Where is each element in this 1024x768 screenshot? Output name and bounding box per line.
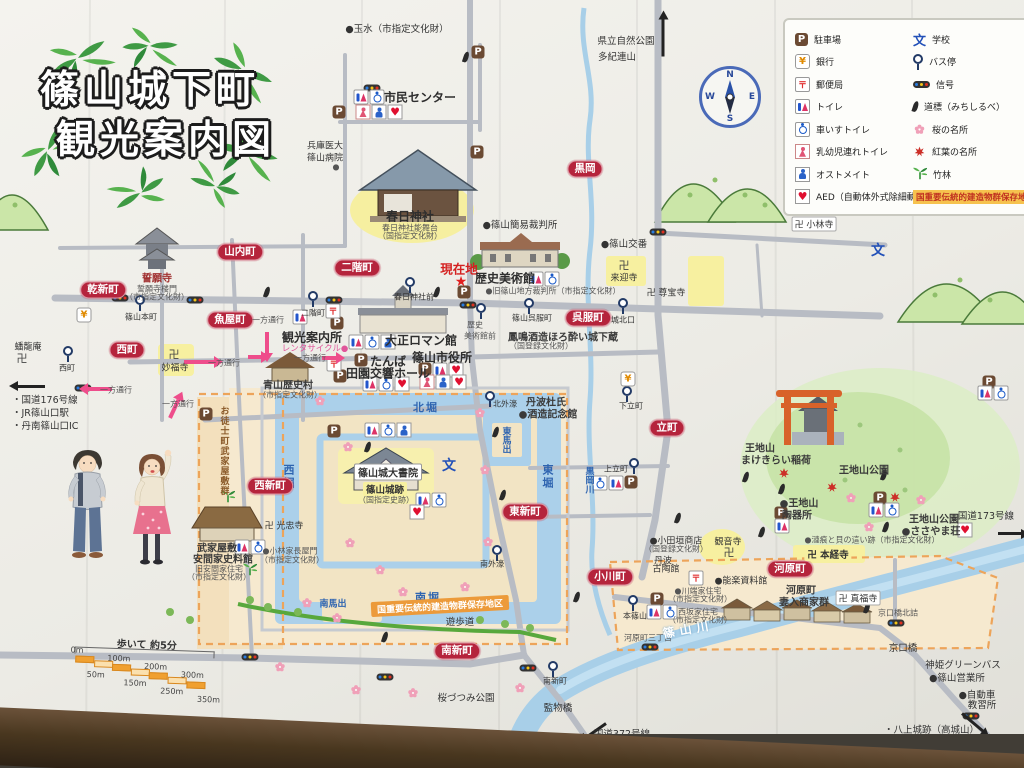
legend-label-wheelchair: 車いすトイレ: [816, 123, 870, 136]
bank-icon: ¥: [621, 372, 636, 387]
map-label: 王地山公園: [839, 462, 889, 477]
map-label: ・JR篠山口駅: [12, 405, 69, 419]
map-label: 東新町: [502, 504, 548, 521]
direction-arrow: [662, 19, 665, 57]
map-label: 陶器所: [782, 507, 812, 522]
signal-icon: [888, 620, 905, 627]
bus-stop: [476, 303, 486, 319]
scale-tick-label: 50m: [87, 670, 105, 680]
map-title-line1: 篠山城下町: [40, 66, 276, 116]
map-label: （市指定文化財）: [668, 594, 732, 605]
signal-icon: [913, 81, 930, 88]
sakura-icon: [274, 661, 287, 674]
wheelchair-icon: [381, 423, 396, 438]
map-label: 山内町: [217, 244, 263, 261]
map-label: ●能楽資料館: [715, 574, 768, 587]
map-label: 美術館前: [464, 331, 496, 342]
signpost-icon: [501, 490, 506, 501]
sakura-icon: [374, 564, 387, 577]
map-label: 河原町: [767, 561, 813, 578]
sakura-icon: [845, 492, 858, 505]
map-label: （市指定文化財）: [187, 572, 251, 583]
legend-row-parking: P駐車場: [795, 28, 913, 51]
sakura-icon: [331, 612, 344, 625]
school-icon: 文: [913, 30, 926, 49]
legend-row-post: 〒郵便局: [795, 73, 913, 96]
map-label: 教習所: [968, 697, 997, 711]
signpost-icon: [265, 287, 270, 298]
sakura-icon: [482, 536, 495, 549]
sakura-icon: [913, 123, 926, 136]
map-label: 卍 小林寺: [792, 217, 837, 232]
facility-icons: [869, 503, 900, 518]
map-label: 監物橋: [544, 700, 573, 714]
bus-stop: [628, 595, 638, 611]
signpost-icon: [435, 287, 440, 298]
signpost-icon: [744, 472, 749, 483]
map-label: 東堀: [539, 464, 555, 490]
map-label: 乾新町: [80, 282, 126, 299]
facility-icons: ♥: [356, 105, 403, 120]
map-label: 歴史: [467, 320, 483, 331]
denen-hall: 田園交響ホール: [346, 365, 430, 382]
legend-row-baby: 乳幼児連れトイレ: [795, 141, 913, 164]
toilet-icon: [647, 605, 662, 620]
map-label: 古陶館: [652, 562, 679, 575]
toilet-icon: [869, 503, 884, 518]
busstop-icon: [308, 291, 318, 307]
parking-marker: P: [328, 425, 341, 438]
traffic-signal: [888, 620, 905, 627]
signpost-icon: [913, 101, 918, 112]
map-title: 篠山城下町 観光案内図: [40, 66, 276, 166]
map-label: 一方通行: [294, 353, 326, 364]
parking-marker: P: [200, 408, 213, 421]
traffic-signal: [642, 644, 659, 651]
legend-row-wheelchair: 車いすトイレ: [795, 118, 913, 141]
legend-label-baby: 乳幼児連れトイレ: [816, 145, 888, 158]
parking-icon: P: [200, 408, 213, 421]
map-label: （国指定史跡）: [358, 495, 414, 506]
scale-tick-label: 0m: [70, 645, 83, 654]
map-board: 篠山城下町 観光案内図 N E S W P駐車場¥銀行〒郵便局トイレ車いすトイレ…: [0, 0, 1024, 768]
map-label: ●漣痕と貝の這い跡（市指定文化財）: [805, 535, 940, 546]
compass-e: E: [749, 92, 755, 102]
signpost-icon: [383, 632, 388, 643]
signal-icon: [520, 665, 537, 672]
legend-row-toilet: トイレ: [795, 96, 913, 119]
signal-icon: [642, 644, 659, 651]
legend-label-toilet: トイレ: [816, 100, 843, 113]
aed-icon: ♥: [410, 505, 425, 520]
map-label: 遊歩道: [446, 614, 475, 628]
toilet-icon: [609, 476, 624, 491]
map-label: 県立自然公園: [597, 33, 654, 47]
facility-icons: [354, 90, 385, 105]
makekirai-inari: まけきらい稲荷: [741, 452, 811, 467]
signal-icon: [187, 297, 204, 304]
scale-step: [112, 664, 131, 672]
ostomate-icon: [436, 375, 451, 390]
scale-step: [149, 673, 168, 681]
bus-stop: [618, 298, 628, 314]
map-label: ●酒造記念館: [519, 406, 578, 421]
map-label: 来迎寺: [610, 271, 637, 284]
map-label: 南馬出: [319, 597, 346, 610]
map-label: （市指定文化財）: [258, 390, 322, 401]
busstop-icon: [628, 595, 638, 611]
map-label: 西新町: [247, 478, 293, 495]
wheelchair-icon: [432, 493, 447, 508]
map-label: 黒岡川: [583, 467, 596, 494]
map-label: （市指定文化財）: [125, 292, 189, 303]
map-label: 立町: [650, 420, 685, 437]
bank-icon: ¥: [795, 54, 810, 69]
sakura-icon: [514, 682, 527, 695]
maple-icon: [913, 145, 926, 158]
toilet-icon: [978, 386, 993, 401]
ostomate-icon: [372, 105, 387, 120]
scale-tick-label: 350m: [197, 695, 220, 705]
map-label: （国登録文化財）: [509, 341, 573, 352]
signpost-icon: [494, 427, 499, 438]
wheelchair-icon: [365, 335, 380, 350]
scale-tick-label: 250m: [160, 687, 183, 697]
map-label: お徒士町武家屋敷群: [218, 406, 231, 496]
map-label: 北堀: [413, 399, 439, 415]
legend-row-school: 文学校: [913, 28, 1024, 51]
facility-icons: [365, 423, 412, 438]
busstop-icon: [629, 458, 639, 474]
legend-row-maple: 紅葉の名所: [913, 141, 1024, 164]
direction-arrow: [998, 532, 1022, 535]
signpost-icon: [575, 592, 580, 603]
legend-row-sakura: 桜の名所: [913, 118, 1024, 141]
parking-icon: P: [795, 33, 808, 46]
facility-icons: 〒: [326, 304, 341, 319]
legend-label-parking: 駐車場: [814, 33, 841, 46]
map-label: （市指定文化財）: [260, 555, 324, 566]
legend-row-aed: ♥AED（自動体外式除細動器）: [795, 186, 913, 209]
ostomate-icon: [397, 423, 412, 438]
sakura-icon: [459, 581, 472, 594]
sakura-icon: [342, 441, 355, 454]
bus-stop-label: 春日神社前: [394, 292, 434, 303]
signal-icon: [650, 229, 667, 236]
map-label: 卍: [724, 544, 735, 560]
signpost-icon: [884, 522, 889, 533]
map-label: 文: [871, 240, 885, 260]
wheelchair-icon: [795, 122, 810, 137]
busstop-icon: [618, 298, 628, 314]
scale-tick-label: 300m: [181, 670, 204, 680]
baby-icon: [795, 144, 810, 159]
maple-icon: [778, 467, 791, 480]
legend-row-district: 国重要伝統的建造物群保存地区: [913, 186, 1024, 209]
facility-icons: 〒: [689, 571, 704, 586]
signal-icon: [326, 297, 343, 304]
map-title-line2: 観光案内図: [56, 116, 276, 166]
facility-icons: P: [593, 476, 638, 491]
map-label: ・国道176号線: [12, 392, 78, 406]
sakura-icon: [407, 687, 420, 700]
compass-n: N: [726, 70, 734, 80]
parking-marker: P: [333, 106, 346, 119]
map-label: 一方通行: [252, 315, 284, 326]
signpost-icon: [676, 513, 681, 524]
tamamizu: ●玉水（市指定文化財）: [345, 21, 448, 35]
traffic-signal: [377, 674, 394, 681]
legend-label-district: 国重要伝統的建造物群保存地区: [913, 190, 1024, 204]
wheelchair-icon: [994, 386, 1009, 401]
legend-label-ostomate: オストメイト: [816, 168, 870, 181]
aed-icon: ♥: [452, 375, 467, 390]
map-label: ●篠山営業所: [929, 670, 985, 684]
sakura-icon: [397, 586, 410, 599]
wheelchair-icon: [545, 272, 560, 287]
map-label: ●篠山交番: [601, 236, 647, 250]
legend-row-ostomate: オストメイト: [795, 163, 913, 186]
city-hall: 篠山市役所: [412, 349, 472, 366]
toilet-icon: [365, 423, 380, 438]
map-label: 一方通行: [162, 399, 194, 410]
history-art-museum: 歴史美術館: [475, 270, 535, 287]
taisho-roman-kan: 大正ロマン館: [385, 332, 457, 349]
traffic-signal: [520, 665, 537, 672]
busstop-icon: [913, 54, 923, 70]
map-label: ・丹南篠山口IC: [12, 418, 78, 432]
bus-stop-label: 篠山本町: [125, 312, 157, 323]
map-label: 文: [442, 455, 456, 475]
legend-label-maple: 紅葉の名所: [932, 145, 977, 158]
wheelchair-icon: [370, 90, 385, 105]
traffic-signal: [242, 654, 259, 661]
bus-stop-label: 篠山呉服町: [512, 313, 552, 324]
bus-stop-label: 北外濠: [493, 399, 517, 410]
scale-step: [75, 656, 94, 664]
compass-w: W: [705, 92, 715, 102]
summary-court: ●篠山簡易裁判所: [483, 217, 558, 231]
map-label: ●: [333, 163, 340, 172]
map-label: 卍 光忠寺: [265, 519, 304, 532]
map-label: 卍: [17, 350, 28, 366]
one-way-arrow: [248, 355, 261, 359]
signal-icon: [377, 674, 394, 681]
signpost-icon: [366, 442, 371, 453]
map-label: 小川町: [587, 569, 633, 586]
sakura-park: 桜づつみ公園: [437, 690, 494, 704]
bus-stop-label: 本篠山: [623, 611, 647, 622]
traffic-signal: [650, 229, 667, 236]
map-label: 一方通行: [100, 385, 132, 396]
bus-stop-label: 南外濠: [480, 559, 504, 570]
sakura-icon: [863, 521, 876, 534]
map-label: 南新町: [434, 643, 480, 660]
map-label: 東馬出: [500, 427, 513, 454]
sakura-icon: [344, 537, 357, 550]
bus-stop-label: 下立町: [619, 401, 643, 412]
post-icon: 〒: [326, 304, 341, 319]
facility-icons: ¥: [621, 372, 636, 387]
sakura-icon: [479, 464, 492, 477]
scale-tick-label: 100m: [107, 654, 130, 664]
post-icon: 〒: [689, 571, 704, 586]
map-label: 二階町: [334, 260, 380, 277]
parking-marker: P: [471, 146, 484, 159]
legend-row-signpost: 道標（みちしるべ）: [913, 96, 1024, 119]
taki-renzan: 多紀連山: [598, 49, 636, 63]
maple-icon: [889, 491, 902, 504]
facility-icons: [978, 386, 1009, 401]
bus-stop-label: 上立町: [604, 464, 628, 475]
map-label: 神姫グリーンバス: [925, 657, 1001, 671]
you-are-here-star: ★: [455, 274, 468, 290]
signpost-icon: [780, 484, 785, 495]
map-label: 黒岡: [568, 161, 603, 178]
traffic-signal: [326, 297, 343, 304]
parking-marker: P: [472, 46, 485, 59]
bank-icon: ¥: [77, 308, 92, 323]
signal-icon: [460, 302, 477, 309]
toilet-icon: [354, 90, 369, 105]
map-label: 誓願寺: [142, 270, 172, 285]
signboard-photo: 篠山城下町 観光案内図 N E S W P駐車場¥銀行〒郵便局トイレ車いすトイレ…: [0, 0, 1024, 768]
legend-label-signpost: 道標（みちしるべ）: [924, 100, 1005, 113]
legend-row-busstop: バス停: [913, 51, 1024, 74]
toilet-icon: [795, 99, 810, 114]
legend-right-column: 文学校バス停信号道標（みちしるべ）桜の名所紅葉の名所竹林国重要伝統的建造物群保存…: [913, 28, 1024, 208]
map-legend: P駐車場¥銀行〒郵便局トイレ車いすトイレ乳幼児連れトイレオストメイト♥AED（自…: [783, 18, 1024, 216]
parking-icon: P: [333, 106, 346, 119]
compass-s: S: [727, 114, 733, 124]
busstop-icon: [476, 303, 486, 319]
map-label: 京口橋: [889, 640, 918, 654]
facility-icons: ♥: [410, 505, 425, 520]
map-label: 魚屋町: [207, 312, 253, 329]
map-label: 卍 真福寺: [836, 591, 881, 606]
map-label: （国指定文化財）: [378, 231, 442, 242]
ostomate-icon: [795, 167, 810, 182]
bus-stop: [629, 458, 639, 474]
parking-icon: P: [625, 476, 638, 489]
legend-row-signal: 信号: [913, 73, 1024, 96]
bus-stop-label: 城北口: [611, 315, 635, 326]
toilet-icon: [349, 335, 364, 350]
scale-tick-label: 200m: [144, 662, 167, 672]
parking-icon: P: [472, 46, 485, 59]
scale-step: [186, 681, 205, 689]
bus-stop-label: 二階町: [301, 308, 325, 319]
signpost-icon: [464, 52, 469, 63]
bamboo-icon: [913, 167, 927, 181]
post-icon: 〒: [795, 77, 810, 92]
sakura-icon: [474, 407, 487, 420]
map-label: 呉服町: [565, 310, 611, 327]
map-label: 国道173号線: [958, 508, 1014, 522]
tsumairi-merchant-houses: 妻入商家群: [779, 594, 829, 609]
signpost-icon: [760, 527, 765, 538]
one-way-arrow: [265, 332, 269, 353]
aed-icon: ♥: [388, 105, 403, 120]
preservation-district-banner: 国重要伝統的建造物群保存地区: [371, 595, 510, 617]
sakura-icon: [915, 494, 928, 507]
legend-label-busstop: バス停: [929, 55, 956, 68]
compass-rose: N E S W: [699, 66, 761, 128]
map-label: 妙福寺: [161, 361, 188, 374]
bus-stop: [63, 346, 73, 362]
maple-icon: [826, 481, 839, 494]
facility-icons: ¥: [77, 308, 92, 323]
legend-label-bank: 銀行: [816, 55, 834, 68]
oshoin: 篠山城大書院: [354, 464, 422, 481]
sakura-icon: [301, 597, 314, 610]
legend-label-school: 学校: [932, 33, 950, 46]
parking-icon: P: [328, 425, 341, 438]
traffic-signal: [187, 297, 204, 304]
direction-arrow: [17, 385, 45, 388]
bus-stop-label: 南新町: [543, 676, 567, 687]
legend-row-bank: ¥銀行: [795, 51, 913, 74]
legend-left-column: P駐車場¥銀行〒郵便局トイレ車いすトイレ乳幼児連れトイレオストメイト♥AED（自…: [795, 28, 913, 208]
baby-icon: [356, 105, 371, 120]
map-label: 京口橋北詰: [878, 608, 918, 619]
busstop-icon: [63, 346, 73, 362]
legend-label-post: 郵便局: [816, 78, 843, 91]
bus-stop-label: 西町: [59, 363, 75, 374]
map-label: 西町: [110, 342, 145, 359]
scale-tick-label: 150m: [123, 678, 146, 688]
signal-icon: [242, 654, 259, 661]
sakura-icon: [350, 684, 363, 697]
bus-stop: [308, 291, 318, 307]
map-label: 一方通行: [208, 358, 240, 369]
map-label: 卍 尊宝寺: [647, 286, 686, 299]
scale-bar: 歩いて 約5分 0m100m200m300m50m150m250m350m: [69, 633, 223, 704]
wheelchair-icon: [885, 503, 900, 518]
parking-icon: P: [471, 146, 484, 159]
legend-label-bamboo: 竹林: [933, 168, 951, 181]
map-label: ●旧篠山地方裁判所（市指定文化財）: [486, 286, 621, 297]
civic-center: 市民センター: [384, 89, 456, 106]
aed-icon: ♥: [795, 189, 810, 204]
map-label: 卍 本経寺: [804, 547, 851, 561]
legend-label-sakura: 桜の名所: [932, 123, 968, 136]
traffic-signal: [460, 302, 477, 309]
legend-label-signal: 信号: [936, 78, 954, 91]
legend-row-bamboo: 竹林: [913, 163, 1024, 186]
